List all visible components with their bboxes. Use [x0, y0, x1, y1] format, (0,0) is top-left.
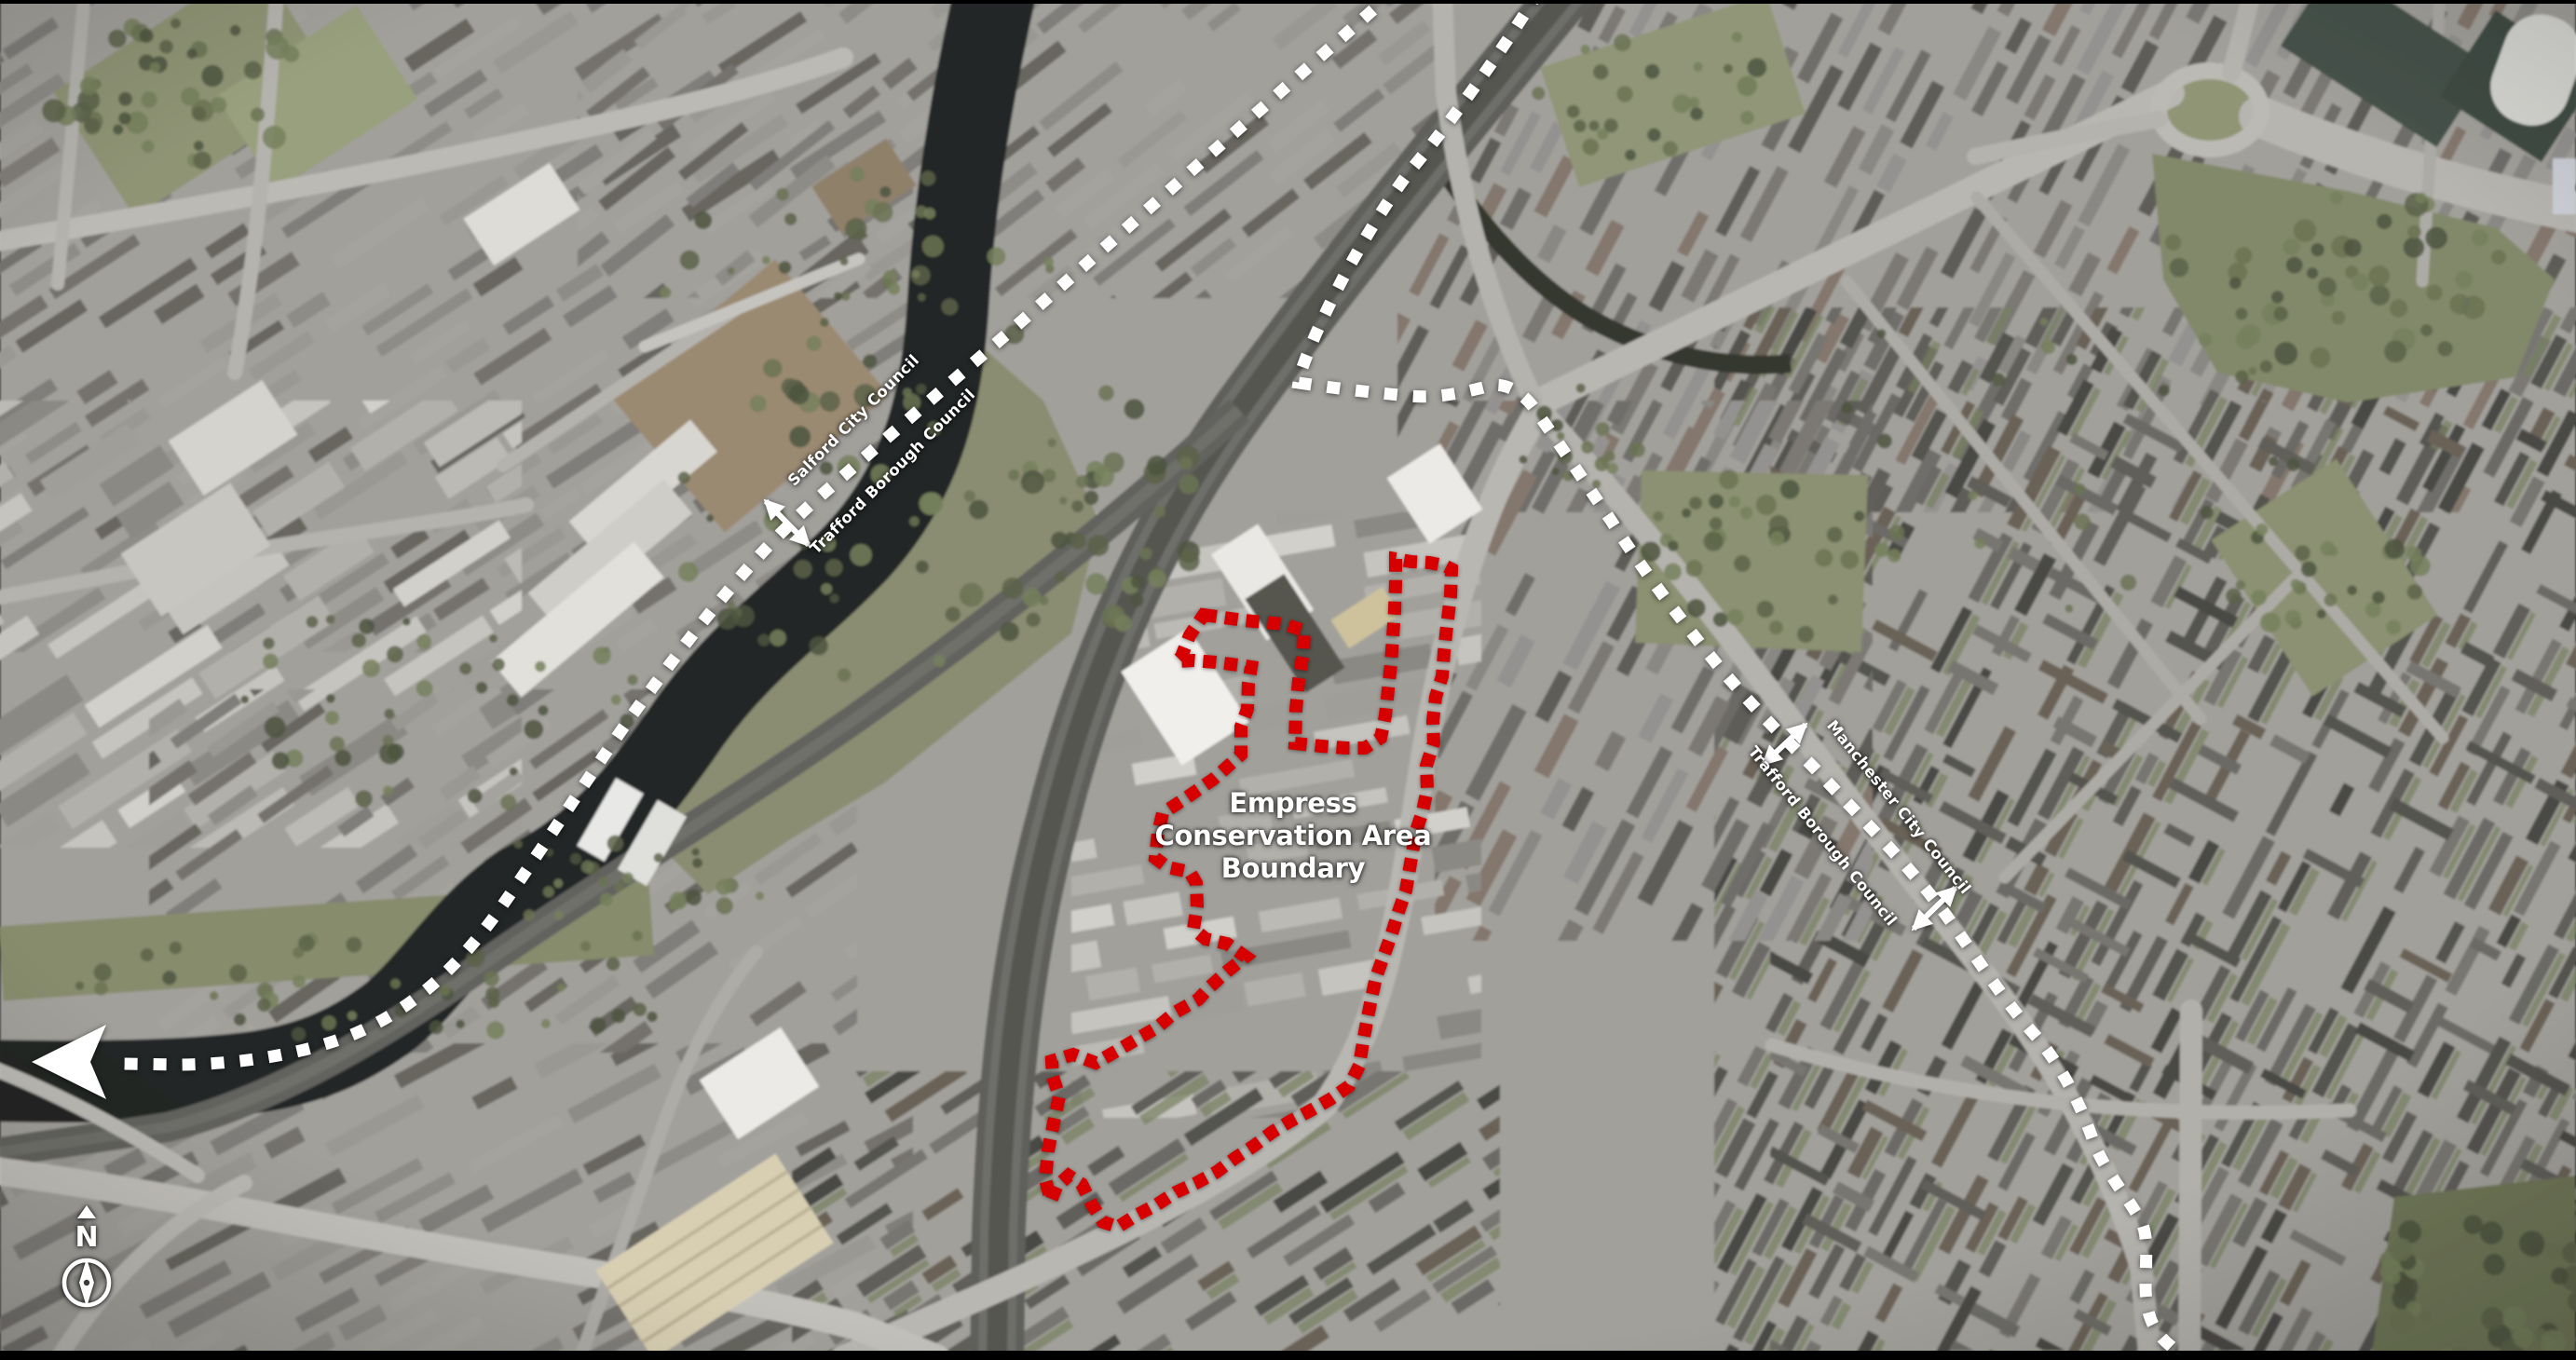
bottom-letterbox-bar — [0, 1351, 2576, 1360]
aerial-map-figure: Salford City Council Trafford Borough Co… — [0, 0, 2576, 1360]
label-conservation-area-line3: Boundary — [1221, 852, 1366, 884]
label-conservation-area-line2: Conservation Area — [1155, 820, 1432, 851]
aerial-imagery — [0, 0, 2576, 1360]
label-conservation-area-line1: Empress — [1229, 787, 1356, 819]
compass-pivot-icon — [84, 1280, 89, 1285]
top-letterbox-bar — [0, 0, 2576, 4]
north-label: N — [75, 1221, 98, 1254]
map-svg: Salford City Council Trafford Borough Co… — [0, 0, 2576, 1360]
